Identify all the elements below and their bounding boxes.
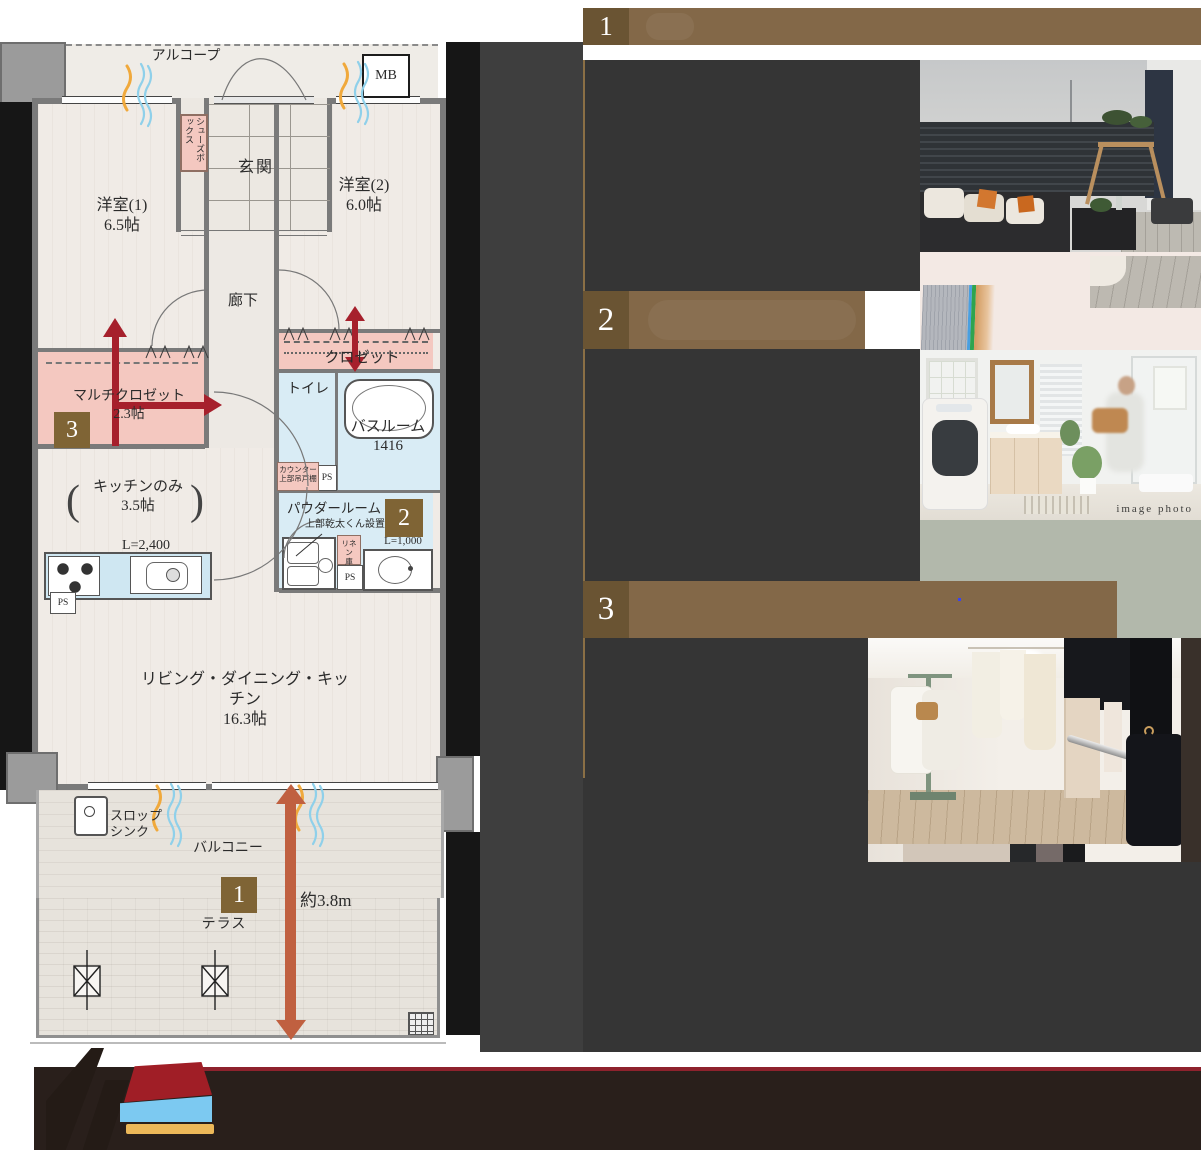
photo-detail	[1181, 638, 1201, 862]
feature-1-number: 1	[583, 8, 629, 45]
photo-detail	[1116, 196, 1122, 210]
terrace-depth-arrow-head	[276, 784, 306, 804]
photo-detail	[1144, 726, 1154, 736]
vanity-basin	[378, 556, 412, 584]
meter-box: MB	[362, 54, 410, 98]
photo-detail	[924, 188, 964, 218]
photo-detail	[1000, 650, 1026, 720]
label-multi-closet: マルチクロゼット2.3帖	[58, 388, 200, 423]
photo-detail	[1070, 80, 1072, 124]
outer-wall-left	[0, 102, 32, 790]
photo-detail	[1092, 408, 1128, 433]
label-terrace-depth: 約3.8m	[300, 890, 380, 911]
feature-1-title-ghost	[646, 13, 694, 40]
ps-label: PS	[58, 598, 69, 608]
room-name: 洋室(2)	[339, 177, 390, 194]
photo-terrace	[920, 60, 1201, 256]
badge-number: 2	[398, 505, 410, 532]
photo-detail	[1090, 198, 1112, 212]
feature-1-accent-border	[583, 60, 585, 291]
closet-arrow-head	[345, 306, 365, 321]
terrace-outer-line	[30, 1042, 446, 1044]
pillar-top-left	[0, 42, 66, 104]
fixture-name: スロップ	[110, 808, 162, 823]
brand-book-icon	[116, 1060, 216, 1136]
photo-detail	[1072, 446, 1102, 480]
photo-detail	[1151, 198, 1193, 224]
kitchen-faucet	[166, 568, 180, 582]
photo-detail	[1118, 376, 1135, 395]
feature-3-accent-border	[583, 638, 585, 778]
flow-arrow-head	[204, 394, 222, 416]
washer-detail	[287, 566, 319, 586]
room-size: 1416	[373, 438, 403, 454]
photo-detail	[1036, 844, 1063, 862]
counter-cupboard-note: カウンター上部吊戸棚	[277, 462, 319, 491]
counter-note-label: カウンター	[279, 465, 317, 474]
feature-1-text-block	[583, 60, 920, 291]
photo-detail	[1024, 496, 1090, 514]
wall	[38, 348, 205, 352]
washer-detail	[318, 558, 333, 573]
photo-detail	[1010, 844, 1036, 862]
label-closet: クロゼット	[318, 349, 406, 368]
room-name: リビング・ダイニング・キッチン	[141, 671, 349, 708]
photo-detail	[910, 792, 956, 800]
multi-closet-pipe	[46, 362, 198, 364]
kitchen-paren-open: (	[66, 480, 80, 522]
label-vanity-length: L=1,000	[377, 535, 429, 549]
photo-detail	[1080, 478, 1096, 494]
label-ldk: リビング・ダイニング・キッチン16.3帖	[138, 670, 352, 730]
photo-detail	[920, 122, 1154, 196]
room-size: 6.0帖	[346, 197, 382, 214]
slop-sink-drain	[84, 806, 95, 817]
drain-grate-icon	[408, 1012, 434, 1035]
stove	[48, 556, 100, 596]
image-photo-caption: image photo	[1116, 503, 1193, 515]
wall	[279, 329, 440, 333]
photo-detail	[1090, 256, 1126, 286]
window-ldk-left	[88, 782, 206, 790]
room-name: 洋室(1)	[97, 197, 148, 214]
meter-box-label: MB	[375, 68, 397, 84]
ps-label: PS	[345, 573, 356, 583]
photo-detail	[1104, 702, 1122, 772]
feature-2-accent-border	[583, 349, 585, 581]
photo-detail	[1063, 844, 1085, 862]
room-name: バスルーム	[351, 419, 426, 435]
page: MB シューズボックス リネン庫 PS PS PS カウンター上部吊戸棚	[0, 0, 1201, 1150]
stripe-tan	[974, 285, 995, 352]
label-toilet: トイレ	[284, 381, 332, 399]
window-ldk-right	[212, 782, 438, 790]
badge-number: 1	[233, 882, 245, 909]
photo-detail	[936, 404, 972, 412]
photo-detail	[990, 360, 1034, 424]
photo-detail	[1126, 734, 1184, 846]
outer-wall-right	[446, 42, 480, 756]
feature-2-text-block	[583, 349, 920, 581]
photo-detail	[1060, 420, 1080, 446]
linen-cabinet: リネン庫	[337, 535, 361, 565]
photo-detail	[1072, 208, 1136, 250]
photo-detail	[916, 702, 938, 720]
room-size: 2.3帖	[113, 407, 145, 422]
label-bathroom: バスルーム1416	[342, 418, 434, 456]
label-hallway: 廊下	[219, 292, 267, 311]
room-name: マルチクロゼット	[73, 389, 185, 404]
photo-detail	[1153, 366, 1187, 410]
washer-detail	[287, 542, 319, 564]
photo-closet	[868, 638, 1201, 862]
label-kitchen: キッチンのみ3.5帖	[82, 478, 194, 516]
feature-2-number: 2	[583, 291, 629, 349]
feature-3-header	[583, 581, 1117, 638]
label-bedroom2: 洋室(2)6.0帖	[312, 176, 416, 216]
label-entrance: 玄関	[224, 158, 288, 178]
label-kitchen-length: L=2,400	[104, 537, 188, 555]
book-icon-yellow	[126, 1124, 214, 1134]
photo-detail	[1098, 142, 1154, 147]
pipe-space: PS	[50, 592, 76, 614]
photo-detail	[1024, 654, 1056, 750]
photo-detail	[990, 438, 1062, 494]
photo-detail	[932, 420, 978, 476]
shoe-box: シューズボックス	[180, 114, 208, 172]
label-balcony: バルコニー	[186, 840, 270, 858]
photo-laundry: image photo	[920, 350, 1201, 520]
artifact-dot	[958, 598, 961, 601]
counter-note-label: 上部吊戸棚	[279, 474, 317, 483]
partial-image-stripes	[921, 285, 995, 352]
label-powder-room: パウダールーム	[283, 501, 385, 518]
label-slop-sink: スロップシンク	[110, 808, 174, 841]
footer-red-line	[188, 1067, 1201, 1071]
vanity-faucet	[408, 566, 413, 571]
window-bedroom1	[62, 96, 172, 104]
ps-label: PS	[322, 473, 333, 483]
label-dryer-note: 上部乾太くん設置	[297, 519, 393, 532]
feature-2-title-ghost	[648, 300, 856, 340]
room-size: 6.5帖	[104, 217, 140, 234]
pipe-space: PS	[337, 565, 363, 590]
room-size: 3.5帖	[121, 498, 155, 514]
middle-dark-strip	[480, 42, 583, 1052]
photo-terrace-extension	[1090, 256, 1201, 308]
feature-3-number: 3	[583, 581, 629, 638]
photo-detail	[908, 674, 952, 678]
plan-badge-1: 1	[221, 877, 257, 913]
terrace-depth-arrow	[285, 802, 296, 1022]
terrace-depth-arrow-head	[276, 1020, 306, 1040]
flow-arrow-head	[103, 318, 127, 337]
pipe-space: PS	[317, 465, 337, 491]
photo-detail	[1006, 424, 1040, 434]
outer-wall-right-lower	[446, 832, 480, 1035]
label-bedroom1: 洋室(1)6.5帖	[62, 196, 182, 236]
label-terrace: テラス	[192, 916, 256, 934]
room-name: キッチンのみ	[93, 479, 183, 495]
stripe-block	[921, 285, 969, 352]
entrance-door-sill	[214, 96, 314, 104]
room-size: 16.3帖	[223, 711, 267, 728]
fixture-name: シンク	[110, 824, 149, 839]
photo-detail	[1130, 116, 1152, 128]
linen-label: リネン	[342, 539, 357, 557]
photo-detail	[977, 189, 997, 209]
photo-detail	[972, 652, 1002, 738]
photo-detail	[968, 647, 1064, 649]
photo-detail	[1102, 110, 1132, 125]
photo-detail	[903, 844, 1010, 862]
photo-detail	[1139, 474, 1193, 492]
label-alcove: アルコープ	[138, 48, 234, 66]
photo-detail	[1017, 195, 1035, 213]
